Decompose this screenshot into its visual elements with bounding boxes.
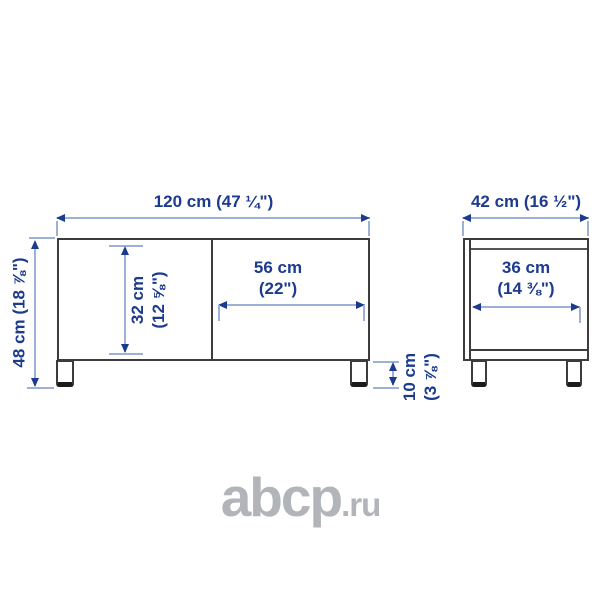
door-width-dimension-line (219, 304, 365, 306)
height-dim-arrowhead-bottom (31, 378, 39, 387)
front-view-right-leg (350, 360, 368, 387)
front-view-divider-line (211, 240, 213, 359)
watermark-brand-text: abcp (221, 468, 341, 526)
leg-height-label-cm: 10 cm (399, 332, 420, 422)
height-dim-arrowhead-top (31, 240, 39, 249)
height-dim-extension-top (29, 237, 55, 239)
interior-depth-tick-right (579, 307, 581, 323)
interior-height-dimension-label: 32 cm (12 ⅝") (127, 245, 169, 355)
width-dimension-line (57, 217, 370, 219)
side-view-bottom-panel-line (471, 349, 587, 351)
interior-depth-label-cm: 36 cm (465, 257, 587, 278)
interior-depth-label-inch: (14 ⅜") (465, 278, 587, 299)
side-view-left-leg (471, 360, 487, 387)
leg-height-extension-bottom (373, 387, 399, 389)
watermark: abcp .ru (213, 468, 388, 528)
interior-depth-arrowhead-left (472, 303, 481, 311)
depth-dimension-label: 42 cm (16 ½") (448, 191, 600, 212)
leg-height-arrowhead-bottom (389, 377, 397, 386)
leg-height-arrowhead-top (389, 362, 397, 371)
height-dimension-line (34, 242, 36, 386)
interior-depth-dimension-label: 36 cm (14 ⅜") (465, 257, 587, 299)
height-dim-extension-bottom (27, 387, 54, 389)
side-view-top-panel-line (471, 248, 587, 250)
door-width-label-inch: (22") (217, 278, 339, 299)
depth-dim-extension-right (587, 221, 589, 236)
interior-height-dimension-line (124, 248, 126, 352)
width-dim-extension-right (368, 221, 370, 236)
depth-dimension-line (463, 217, 589, 219)
interior-depth-dimension-line (473, 306, 580, 308)
furniture-dimension-diagram: 120 cm (47 ¼") 48 cm (18 ⅞") 32 cm (0, 0, 600, 600)
door-width-tick-left (218, 305, 220, 321)
width-dimension-label: 120 cm (47 ¼") (57, 191, 370, 212)
front-view-left-leg (56, 360, 74, 387)
leg-height-dimension-label: 10 cm (3 ⅞") (399, 332, 441, 422)
side-view-right-leg (566, 360, 582, 387)
door-width-tick-right (363, 305, 365, 321)
door-width-label-cm: 56 cm (217, 257, 339, 278)
depth-dim-extension-left (462, 221, 464, 236)
watermark-domain-text: .ru (341, 486, 380, 524)
height-dimension-label: 48 cm (18 ⅞") (9, 233, 30, 393)
interior-height-label-cm: 32 cm (127, 245, 148, 355)
interior-height-label-inch: (12 ⅝") (148, 245, 169, 355)
door-width-dimension-label: 56 cm (22") (217, 257, 339, 299)
leg-height-label-inch: (3 ⅞") (420, 332, 441, 422)
width-dim-extension-left (56, 221, 58, 236)
